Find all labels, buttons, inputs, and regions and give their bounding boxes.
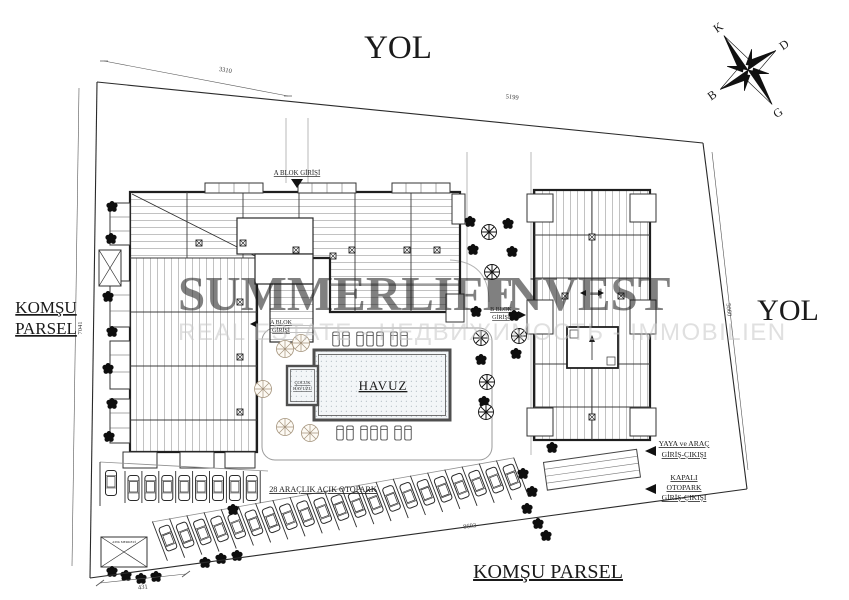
neighbor-left-label-1: KOMŞU [15, 298, 76, 317]
car-icon [451, 473, 470, 500]
car-icon [348, 491, 367, 518]
car-icon [213, 476, 224, 501]
compass-east-label: D [776, 36, 791, 53]
closed-parking-label-1: KAPALI [670, 473, 698, 482]
sun-lounger-icon [381, 426, 387, 440]
sun-lounger-icon [361, 426, 367, 440]
tree-icon [120, 570, 131, 581]
compass-north-label: K [711, 19, 726, 36]
swimming-pool: HAVUZ [314, 350, 450, 420]
closed-parking-label-3: GİRİŞ-ÇIKIŞI [662, 493, 707, 502]
watermark-brand-gray: SUMMERLIFE [178, 266, 516, 321]
sun-lounger-icon [371, 426, 377, 440]
car-icon [246, 476, 257, 501]
umbrella-icon [302, 425, 319, 442]
car-icon [128, 476, 139, 501]
car-icon [106, 471, 117, 496]
palm-tree-icon [479, 405, 494, 420]
kids-pool: ÇOCUK HAVUZU [287, 366, 318, 405]
car-icon [468, 470, 487, 497]
column-marker-icon [330, 253, 336, 259]
umbrella-icon [255, 381, 272, 398]
car-icon [399, 482, 418, 509]
tree-icon [532, 518, 543, 529]
column-marker-icon [589, 234, 595, 240]
dim-right: 5060 [724, 303, 733, 317]
dim-top: 5199 [505, 93, 519, 101]
waste-area-box: ATIK MERKEZİ [101, 537, 147, 567]
closed-parking-arrow-icon [645, 484, 656, 494]
palm-tree-icon [480, 375, 495, 390]
car-icon [210, 515, 229, 542]
watermark: SUMMERLIFE INVEST REAL ESTATE - НЕДВИЖИМ… [178, 266, 787, 346]
car-icon [434, 476, 453, 503]
open-parking-label: 28 ARAÇLIK AÇIK OTOPARK [269, 485, 377, 494]
tree-icon [215, 553, 226, 564]
car-icon [279, 503, 298, 530]
sun-lounger-icon [405, 426, 411, 440]
umbrella-icon [277, 419, 294, 436]
sun-lounger-icon [347, 426, 353, 440]
utility-box [99, 250, 121, 286]
car-icon [330, 494, 349, 521]
tree-icon [526, 486, 537, 497]
car-icon [296, 500, 315, 527]
road-top-label: YOL [364, 30, 432, 66]
tree-icon [510, 348, 521, 359]
waste-area-label: ATIK MERKEZİ [112, 539, 137, 544]
neighbor-bottom-label: KOMŞU PARSEL [473, 561, 623, 583]
car-icon [244, 509, 263, 536]
a-entrance-top-label: A BLOK GİRİŞİ [274, 170, 321, 177]
pedestrian-entry-arrow-icon [645, 446, 656, 456]
column-marker-icon [196, 240, 202, 246]
site-plan-page: HAVUZ ÇOCUK HAVUZU [0, 0, 849, 600]
compass-south-label: G [770, 104, 785, 121]
parking-areas [100, 455, 529, 560]
tree-icon [106, 326, 117, 337]
car-icon [485, 466, 504, 493]
dim-bottom: 8693 [463, 522, 477, 531]
tree-icon [464, 216, 475, 227]
car-icon [179, 476, 190, 501]
car-icon [145, 476, 156, 501]
sun-lounger-icon [337, 426, 343, 440]
car-icon [416, 479, 435, 506]
dim-left: 7041 [77, 322, 84, 335]
car-icon [158, 524, 177, 551]
kids-pool-label-1: ÇOCUK [294, 380, 311, 385]
car-icon [229, 476, 240, 501]
tree-icon [467, 244, 478, 255]
column-marker-icon [293, 247, 299, 253]
column-marker-icon [237, 409, 243, 415]
car-icon [193, 518, 212, 545]
car-icon [382, 485, 401, 512]
closed-parking-label-2: OTOPARK [666, 483, 702, 492]
tree-icon [231, 550, 242, 561]
compass-west-label: B [705, 87, 720, 103]
car-icon [227, 512, 246, 539]
car-icon [196, 476, 207, 501]
tree-icon [546, 442, 557, 453]
tree-icon [502, 218, 513, 229]
column-marker-icon [349, 247, 355, 253]
column-marker-icon [404, 247, 410, 253]
dim-bottom-left: 431 [138, 584, 148, 592]
column-marker-icon [589, 414, 595, 420]
tree-icon [517, 468, 528, 479]
column-marker-icon [240, 240, 246, 246]
site-plan-drawing: HAVUZ ÇOCUK HAVUZU [0, 0, 849, 600]
pedestrian-entry-label-2: GİRİŞ-ÇIKIŞI [662, 450, 707, 459]
tree-icon [506, 246, 517, 257]
car-icon [162, 476, 173, 501]
pool-label: HAVUZ [359, 378, 408, 393]
column-marker-icon [237, 354, 243, 360]
car-icon [176, 521, 195, 548]
car-icon [313, 497, 332, 524]
watermark-subtitle: REAL ESTATE - НЕДВИЖИМОСТЬ - IMMOBILIEN [178, 319, 787, 346]
closed-parking-ramp [543, 449, 640, 490]
palm-tree-icon [482, 225, 497, 240]
column-marker-icon [434, 247, 440, 253]
compass-rose-icon: K D G B [675, 0, 822, 146]
neighbor-left-label-2: PARSEL [15, 319, 77, 338]
dim-top-left: 3310 [218, 66, 232, 75]
tree-icon [540, 530, 551, 541]
watermark-brand-red: INVEST [488, 266, 670, 321]
kids-pool-label-2: HAVUZU [293, 386, 312, 391]
tree-icon [227, 504, 238, 515]
sun-lounger-icon [395, 426, 401, 440]
tree-icon [521, 503, 532, 514]
car-icon [262, 506, 281, 533]
pedestrian-entry-label-1: YAYA ve ARAÇ [659, 439, 710, 448]
